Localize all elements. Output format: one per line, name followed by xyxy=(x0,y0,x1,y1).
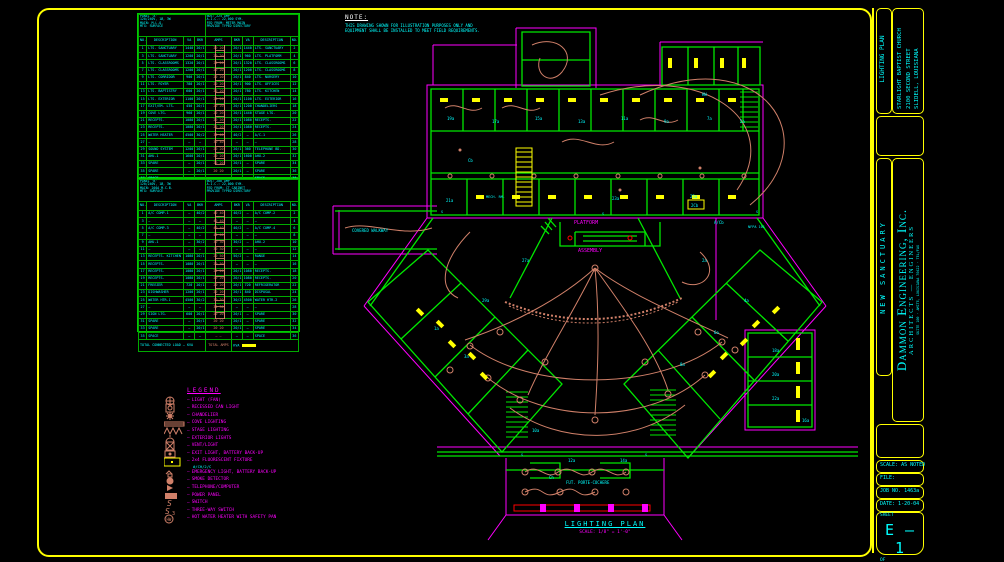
highlight-mark xyxy=(242,344,256,347)
legend-item: —EXIT LIGHT, BATTERY BACK-UP xyxy=(163,450,338,458)
cad-sheet: PLATFORMASSEMBLYCOVERED WALKWAYFUT. PORT… xyxy=(0,0,1004,562)
legend-title: LEGEND xyxy=(187,387,338,394)
legend-label: THREE-WAY SWITCH xyxy=(192,509,234,513)
hw-icon: HW xyxy=(163,514,187,524)
legend-dash: — xyxy=(187,486,190,491)
firm-vertical: Dammon Engineering, Inc. ARCHITECTS — EN… xyxy=(895,163,921,417)
legend-dash: — xyxy=(187,444,190,449)
titleblock-sheet-title-box: LIGHTING PLAN xyxy=(876,8,892,114)
legend-dash: — xyxy=(187,501,190,506)
legend-label: LIGHT (FAN) xyxy=(192,399,221,403)
legend-dash: — xyxy=(187,413,190,418)
legend-item: —VENT/LIGHT xyxy=(163,443,338,451)
legend: LEGEND —LIGHT (FAN)—RECESSED CAN LIGHT—C… xyxy=(163,387,338,522)
titleblock-file-box: FILE: xyxy=(876,473,924,486)
legend-item: —POWER PANEL xyxy=(163,492,338,500)
project-name-vertical: NEW SANCTUARY xyxy=(879,163,887,371)
legend-item: —STAGE LIGHTING xyxy=(163,427,338,435)
titleblock-empty-box-1 xyxy=(876,116,924,156)
legend-item: —COVE LIGHTING xyxy=(163,420,338,428)
legend-label: CHANDELIER xyxy=(192,414,218,418)
sheet-label: SHEET xyxy=(877,513,923,519)
legend-label: POWER PANEL xyxy=(192,494,221,498)
legend-item: —RECESSED CAN LIGHT xyxy=(163,405,338,413)
plan-scale: SCALE: 1/8" = 1'-0" xyxy=(520,530,690,535)
legend-item: —LIGHT (FAN) xyxy=(163,397,338,405)
legend-label: 2x4 FLUORESCENT FIXTURE xyxy=(192,459,253,463)
titleblock-firm-box: Dammon Engineering, Inc. ARCHITECTS — EN… xyxy=(892,158,924,422)
legend-label: SWITCH xyxy=(192,501,208,505)
legend-item: —CHANDELIER xyxy=(163,412,338,420)
scale-value: SCALE: AS NOTED xyxy=(877,461,923,470)
legend-item: —EXTERIOR LIGHTS xyxy=(163,435,338,443)
firm-name: Dammon Engineering, Inc. xyxy=(895,163,908,417)
legend-dash: — xyxy=(187,516,190,521)
legend-label: EXIT LIGHT, BATTERY BACK-UP xyxy=(192,452,263,456)
legend-label: EXTERIOR LIGHTS xyxy=(192,437,232,441)
date-value: DATE: 1-20-04 xyxy=(877,500,923,509)
plan-title: LIGHTING PLAN xyxy=(520,520,690,528)
legend-item: —2x4 FLUORESCENT FIXTURE xyxy=(163,458,338,466)
plan-title-block: LIGHTING PLAN SCALE: 1/8" = 1'-0" xyxy=(520,520,690,535)
legend-dash: — xyxy=(187,478,190,483)
legend-dash: — xyxy=(187,459,190,464)
legend-item: S3—THREE-WAY SWITCH xyxy=(163,507,338,515)
legend-label: EMERGENCY LIGHT, BATTERY BACK-UP xyxy=(192,471,277,475)
file-value: FILE: xyxy=(877,474,923,483)
legend-items: —LIGHT (FAN)—RECESSED CAN LIGHT—CHANDELI… xyxy=(163,397,338,522)
legend-dash: — xyxy=(187,406,190,411)
titleblock-project-box: STARLIGHT BAPTIST CHURCH 2100 SECOND STR… xyxy=(892,8,924,114)
project-line: SLIDELL, LOUISIANA xyxy=(913,11,922,109)
titleblock-divider-line xyxy=(872,8,874,553)
legend-label: HOT WATER HEATER WITH SAFETY PAN xyxy=(192,516,277,520)
breaker-busbar xyxy=(215,210,225,319)
legend-label: TELEPHONE/COMPUTER xyxy=(192,486,240,490)
panel-schedule-b: PANEL 'B'120/240V, 1Ø, 3WMAIN: 200A M.C.… xyxy=(137,178,300,332)
project-line: 2100 SECOND STREET xyxy=(905,11,914,109)
panel-schedule-a: PANEL 'A'120/240V, 1Ø, 3WMAIN: M.L.O.MTG… xyxy=(137,13,300,178)
svg-text:HW: HW xyxy=(167,517,172,522)
legend-dash: — xyxy=(187,429,190,434)
schedule-row: 31SPARE—20/120 2020/1—SPARE32 xyxy=(139,318,299,325)
legend-item: —TELEPHONE/COMPUTER xyxy=(163,484,338,492)
firm-subtitle: ARCHITECTS — ENGINEERS xyxy=(908,163,916,417)
legend-dash: — xyxy=(187,436,190,441)
titleblock-date-box: DATE: 1-20-04 xyxy=(876,499,924,512)
legend-item: HW—HOT WATER HEATER WITH SAFETY PAN xyxy=(163,515,338,523)
legend-dash: — xyxy=(187,398,190,403)
legend-label: STAGE LIGHTING xyxy=(192,429,229,433)
sheet-title-vertical: LIGHTING PLAN xyxy=(879,9,886,109)
legend-item: —EMERGENCY LIGHT, BATTERY BACK-UP xyxy=(163,469,338,477)
note-block: NOTE: THIS DRAWING SHOWN FOR ILLUSTRATIO… xyxy=(345,14,495,33)
titleblock-scale-box: SCALE: AS NOTED xyxy=(876,460,924,473)
job-number: JOB NO. 1463a xyxy=(877,487,923,496)
sheet-number: E — 1 xyxy=(877,521,923,557)
titleblock-sheet-number-box: SHEET E — 1 OF xyxy=(876,512,924,555)
fluor-icon xyxy=(163,457,187,467)
titleblock-project-name-box: NEW SANCTUARY xyxy=(876,158,892,376)
legend-item: —SMOKE DETECTOR xyxy=(163,477,338,485)
legend-dash: — xyxy=(187,470,190,475)
legend-label: VENT/LIGHT xyxy=(192,444,218,448)
note-title: NOTE: xyxy=(345,14,495,21)
legend-dash: — xyxy=(187,451,190,456)
legend-item: S—SWITCH xyxy=(163,500,338,508)
schedule-row: 35SPACE——— ———SPACE36 xyxy=(139,333,299,340)
legend-label: RECESSED CAN LIGHT xyxy=(192,406,240,410)
schedule-row: 35SPARE—20/120 2020/1—SPARE36 xyxy=(139,168,299,175)
firm-address: SUITE 100 · AMITE, LOUISIANA 70422 · TEL… xyxy=(916,163,921,417)
project-line: STARLIGHT BAPTIST CHURCH xyxy=(896,11,905,109)
legend-dash: — xyxy=(187,493,190,498)
titleblock-job-box: JOB NO. 1463a xyxy=(876,486,924,499)
legend-label: COVE LIGHTING xyxy=(192,421,226,425)
legend-dash: — xyxy=(187,421,190,426)
breaker-busbar xyxy=(215,45,225,165)
note-line: EQUIPMENT SHALL BE INSTALLED TO MEET FIE… xyxy=(345,28,495,33)
legend-label: SMOKE DETECTOR xyxy=(192,478,229,482)
legend-dash: — xyxy=(187,508,190,513)
sheet-of-label: OF xyxy=(877,557,923,562)
titleblock-empty-box-2 xyxy=(876,424,924,458)
project-address-vertical: STARLIGHT BAPTIST CHURCH 2100 SECOND STR… xyxy=(896,11,922,109)
schedule-row: 33SPARE—20/120 2020/1—SPARE34 xyxy=(139,326,299,333)
